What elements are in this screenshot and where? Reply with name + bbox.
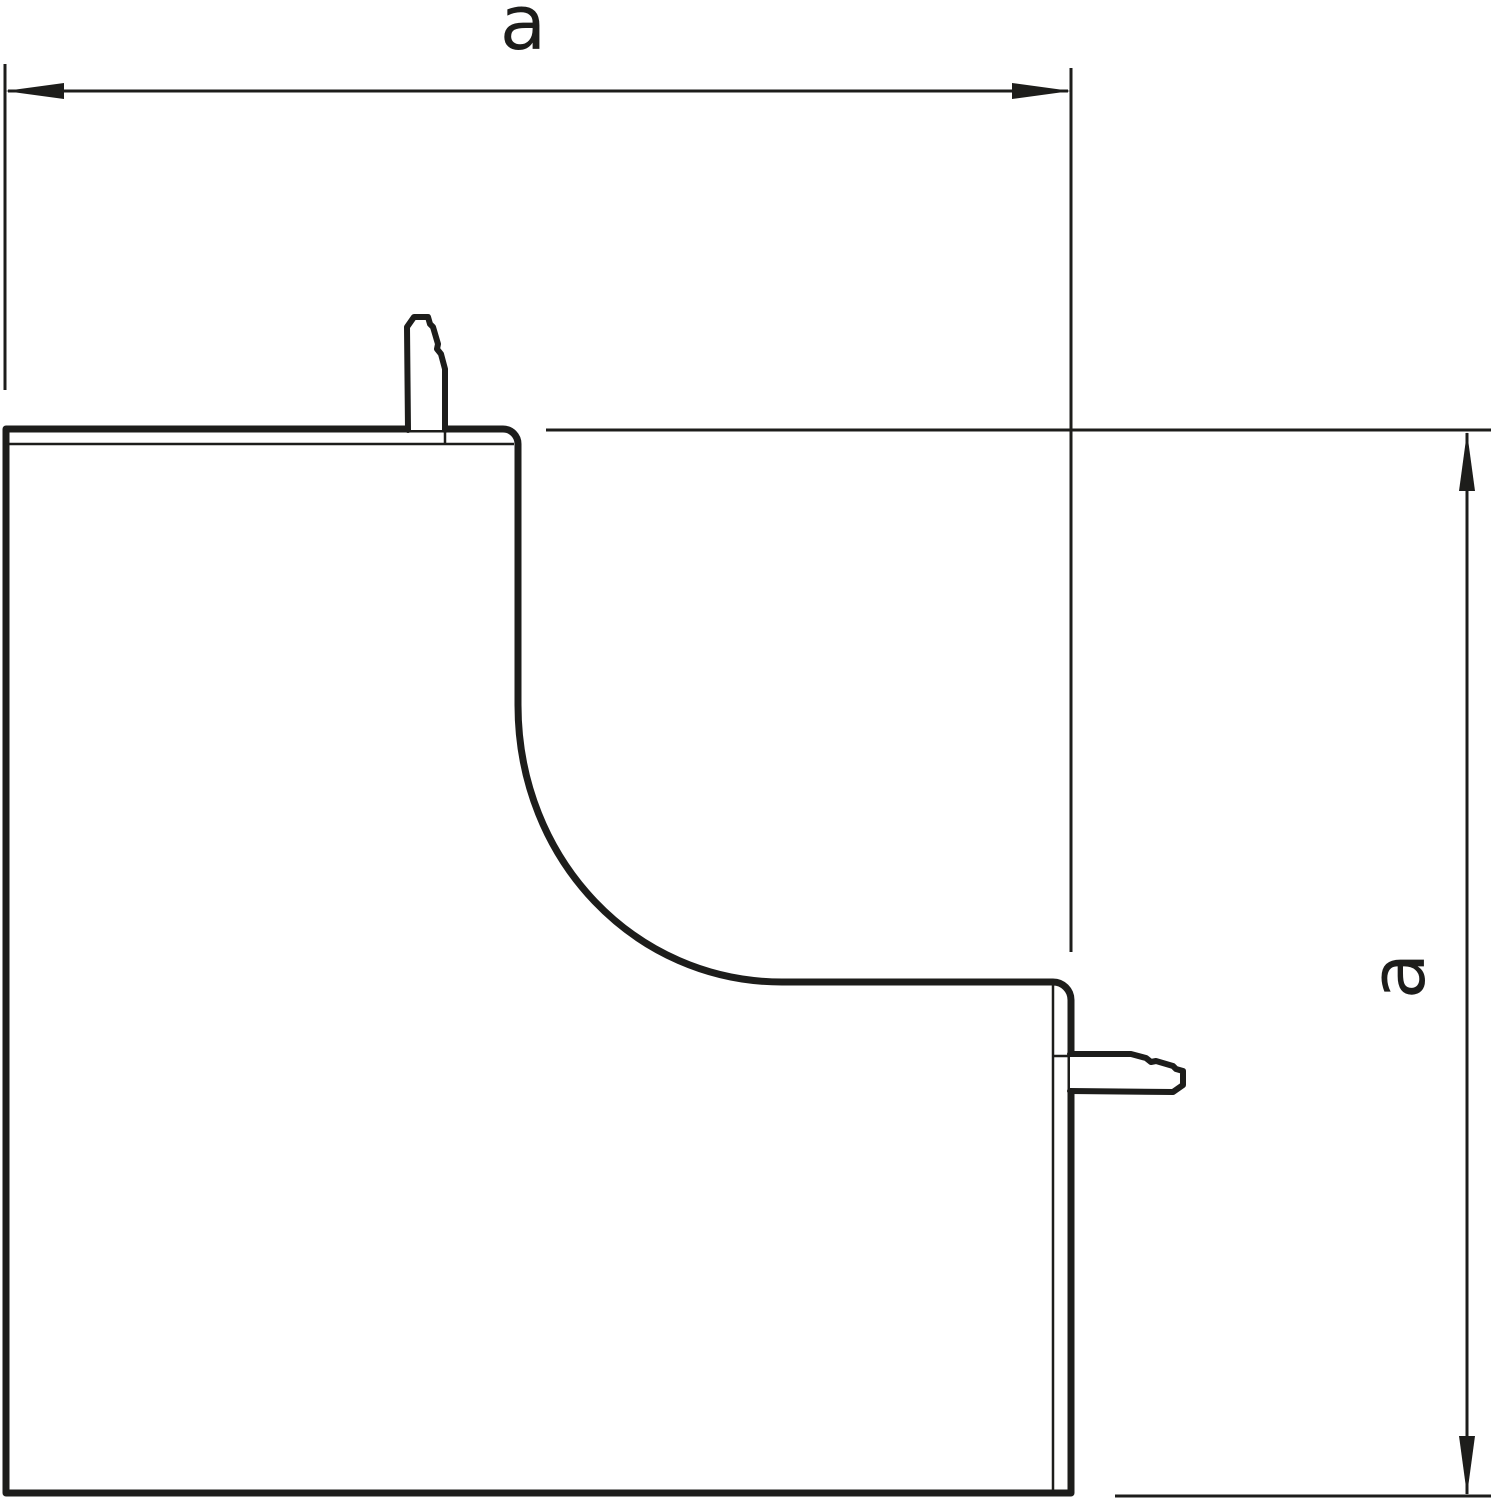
part-body-outline: [6, 429, 1071, 1493]
dim-arrow-right-icon: [1012, 83, 1071, 99]
inner-edge-lines: [8, 432, 1069, 1492]
horizontal-dimension-label: a: [500, 0, 547, 67]
vertical-dimension-label: a: [1353, 953, 1442, 1000]
technical-drawing-canvas: a a: [0, 0, 1491, 1500]
dim-arrow-down-icon: [1459, 1436, 1475, 1495]
top-clip-pin-outline: [407, 317, 445, 430]
part-outline-group: [6, 317, 1183, 1493]
dim-arrow-up-icon: [1459, 432, 1475, 491]
right-clip-pin-outline: [1070, 1054, 1183, 1092]
dim-arrow-left-icon: [5, 83, 64, 99]
